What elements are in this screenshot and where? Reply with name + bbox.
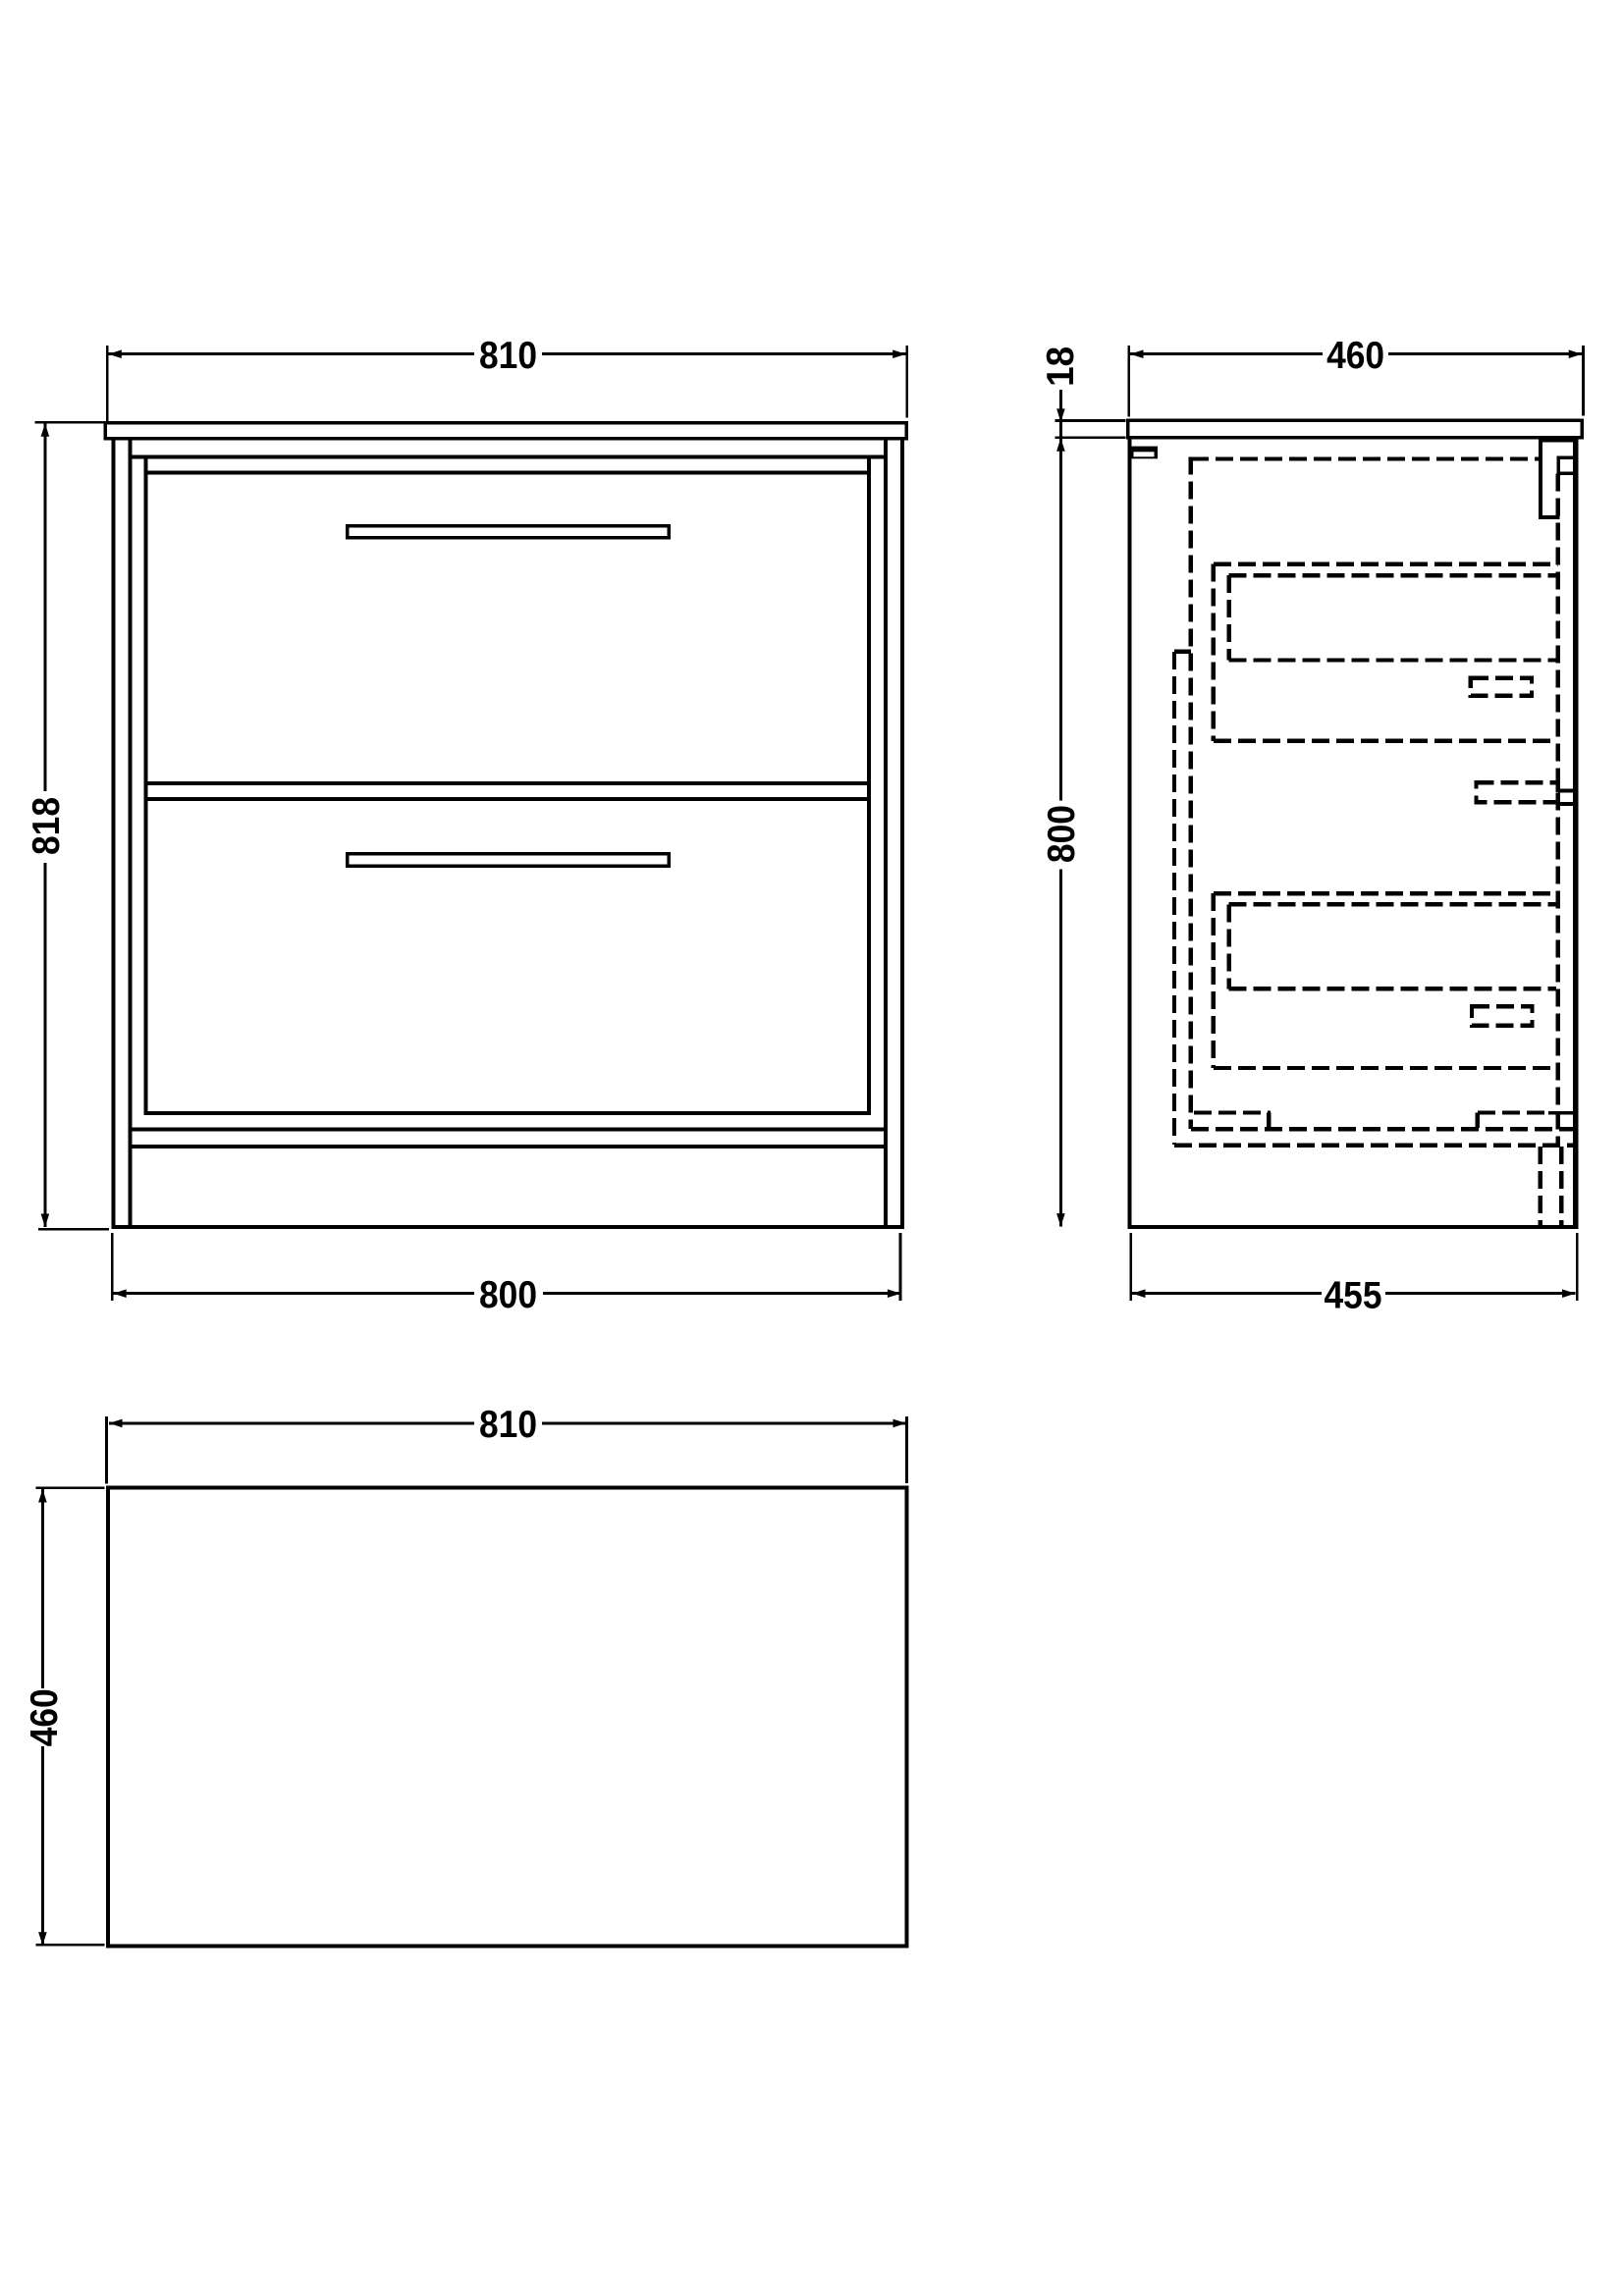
svg-text:18: 18 (1040, 347, 1082, 387)
svg-text:460: 460 (24, 1688, 66, 1746)
svg-text:460: 460 (1326, 335, 1384, 377)
svg-text:818: 818 (26, 797, 68, 855)
svg-text:800: 800 (479, 1274, 537, 1316)
svg-text:800: 800 (1041, 805, 1083, 863)
svg-text:810: 810 (479, 335, 537, 377)
svg-text:455: 455 (1325, 1275, 1382, 1317)
svg-text:810: 810 (479, 1404, 537, 1446)
